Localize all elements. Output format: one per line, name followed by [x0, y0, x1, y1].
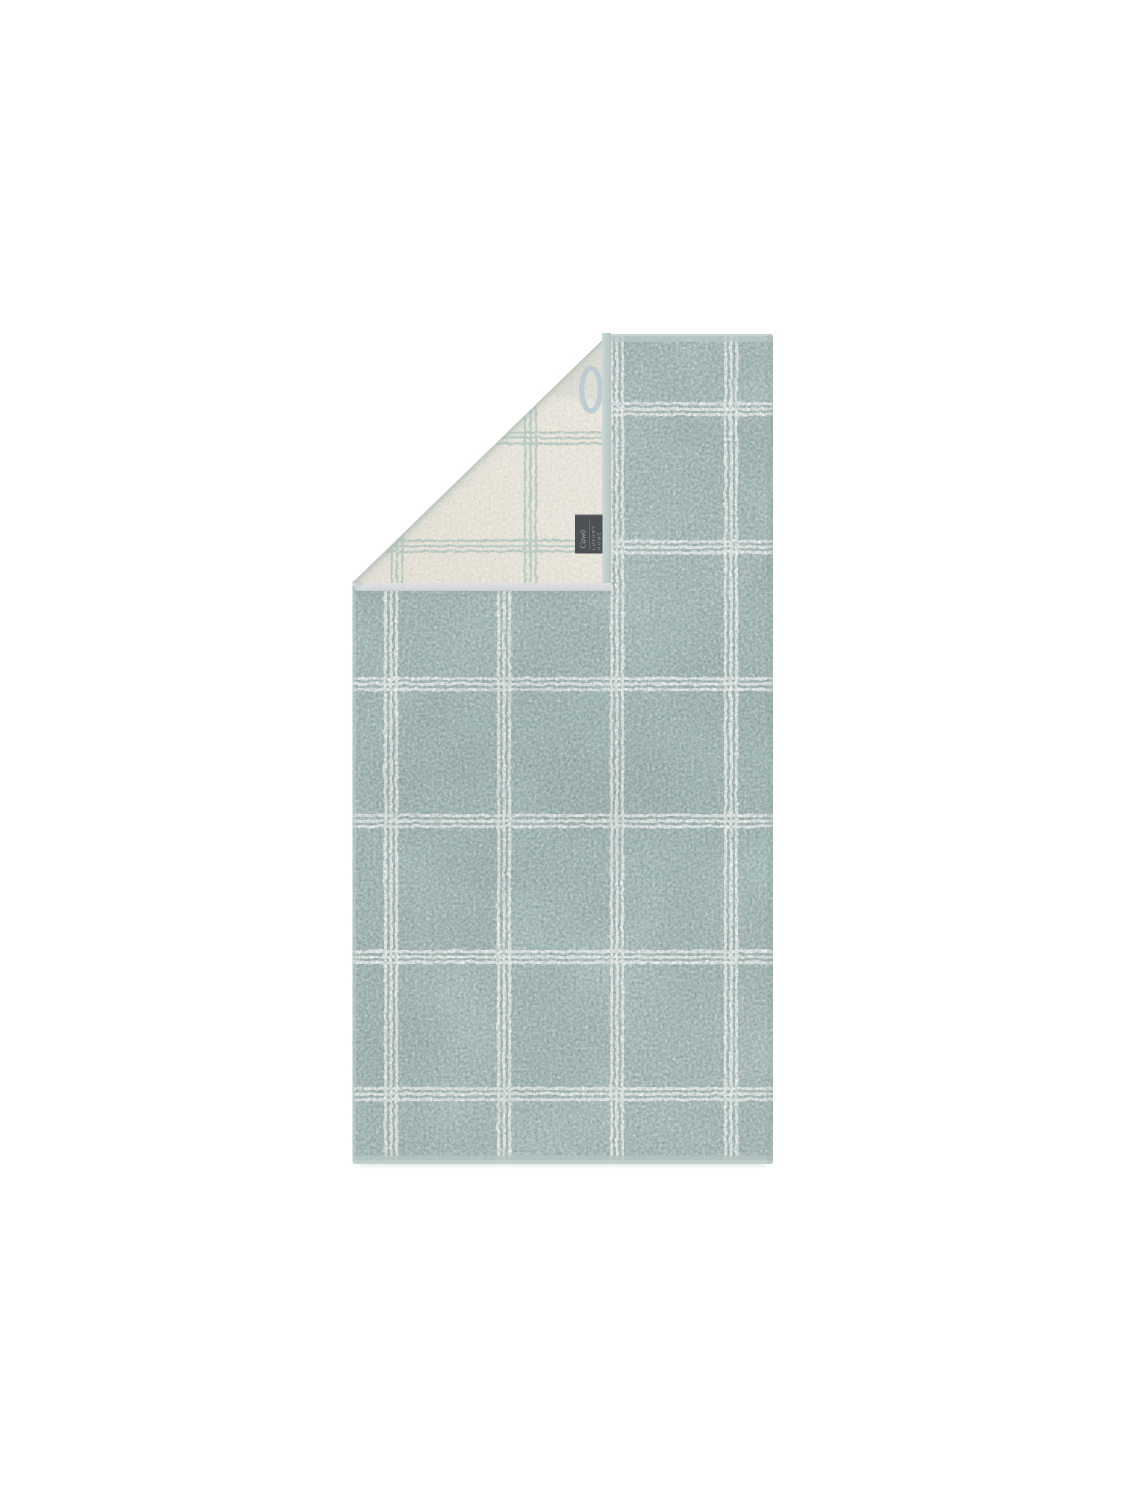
svg-text:HOME: HOME	[597, 532, 602, 550]
svg-text:Cawö: Cawö	[579, 530, 588, 549]
svg-text:LUXURY: LUXURY	[591, 526, 596, 550]
